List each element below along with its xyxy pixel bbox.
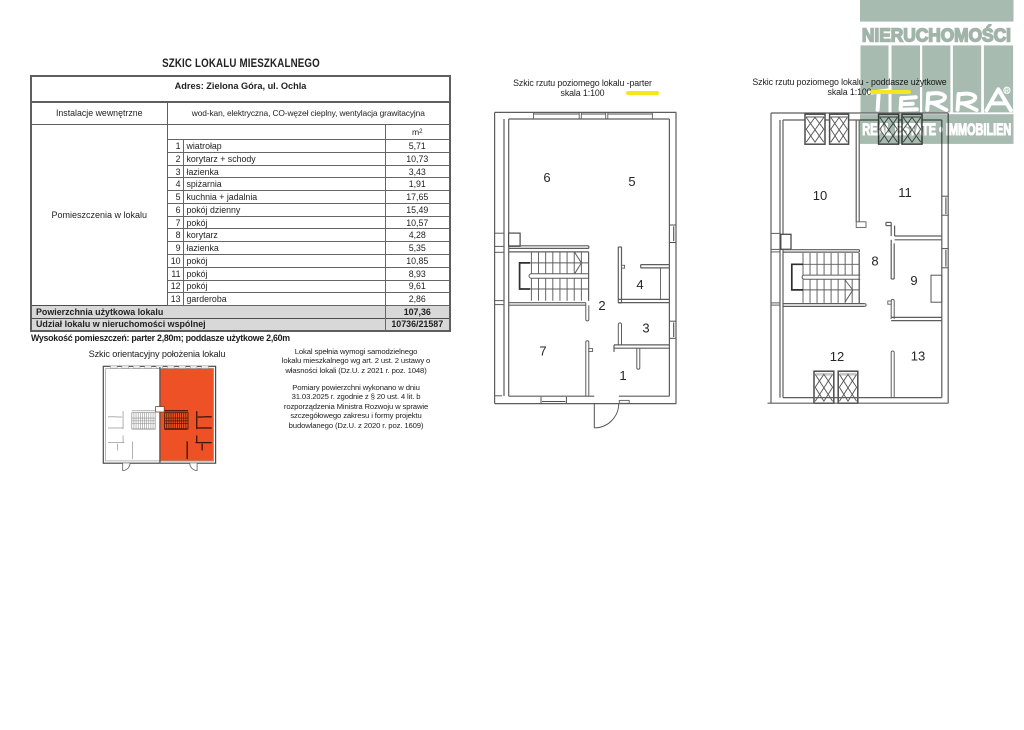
svg-text:6: 6 <box>543 170 550 185</box>
svg-text:13: 13 <box>911 349 925 364</box>
svg-text:11: 11 <box>898 185 912 200</box>
svg-text:2: 2 <box>598 298 605 313</box>
svg-text:8: 8 <box>871 254 878 269</box>
svg-text:10: 10 <box>813 188 827 203</box>
svg-text:1: 1 <box>619 368 626 383</box>
svg-text:4: 4 <box>636 277 643 292</box>
svg-text:R: R <box>1004 88 1008 94</box>
svg-text:12: 12 <box>830 349 844 364</box>
svg-text:9: 9 <box>910 273 917 288</box>
svg-text:3: 3 <box>642 321 649 336</box>
svg-text:5: 5 <box>628 174 635 189</box>
svg-text:REAL ESTATE • IMMOBILIEN: REAL ESTATE • IMMOBILIEN <box>862 121 1011 139</box>
svg-text:7: 7 <box>539 344 546 359</box>
svg-text:NIERUCHOMOŚCI: NIERUCHOMOŚCI <box>861 24 1010 45</box>
